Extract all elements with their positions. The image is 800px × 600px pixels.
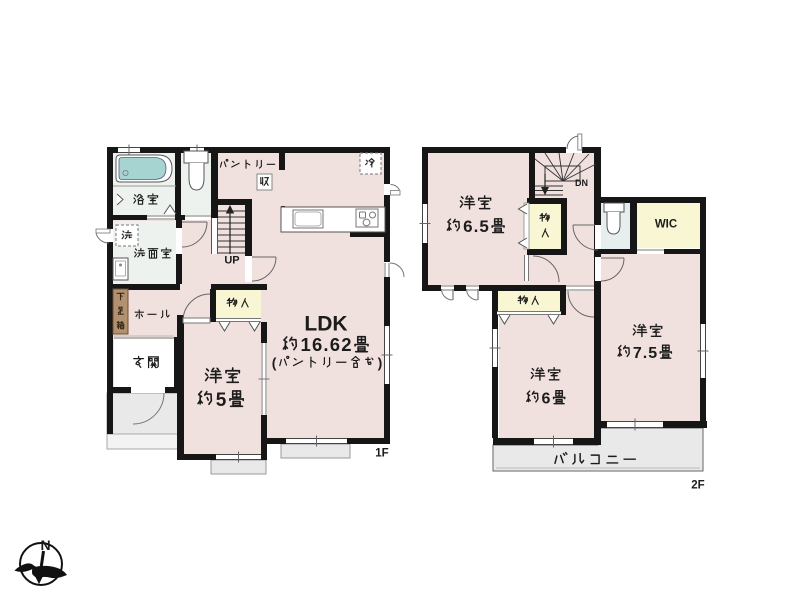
svg-text:2: 2 [341, 334, 351, 355]
svg-text:.: . [474, 217, 479, 236]
svg-text:2F: 2F [691, 480, 704, 492]
svg-text:6: 6 [312, 334, 322, 355]
svg-text:6: 6 [542, 390, 551, 407]
svg-text:UP: UP [224, 254, 239, 266]
svg-text:1: 1 [301, 334, 311, 355]
svg-text:5: 5 [648, 345, 657, 362]
svg-text:.: . [323, 334, 328, 355]
svg-text:6: 6 [330, 334, 340, 355]
svg-text:WIC: WIC [655, 219, 677, 231]
svg-text:.: . [643, 345, 647, 362]
svg-text:6: 6 [463, 217, 472, 236]
svg-text:DN: DN [575, 178, 588, 188]
svg-text:): ) [378, 355, 383, 371]
svg-text:LDK: LDK [304, 313, 347, 336]
svg-text:1F: 1F [375, 448, 388, 460]
svg-text:5: 5 [216, 390, 227, 411]
svg-text:7: 7 [633, 345, 642, 362]
svg-text:(: ( [272, 355, 277, 371]
svg-text:N: N [40, 537, 50, 553]
svg-text:5: 5 [479, 217, 488, 236]
